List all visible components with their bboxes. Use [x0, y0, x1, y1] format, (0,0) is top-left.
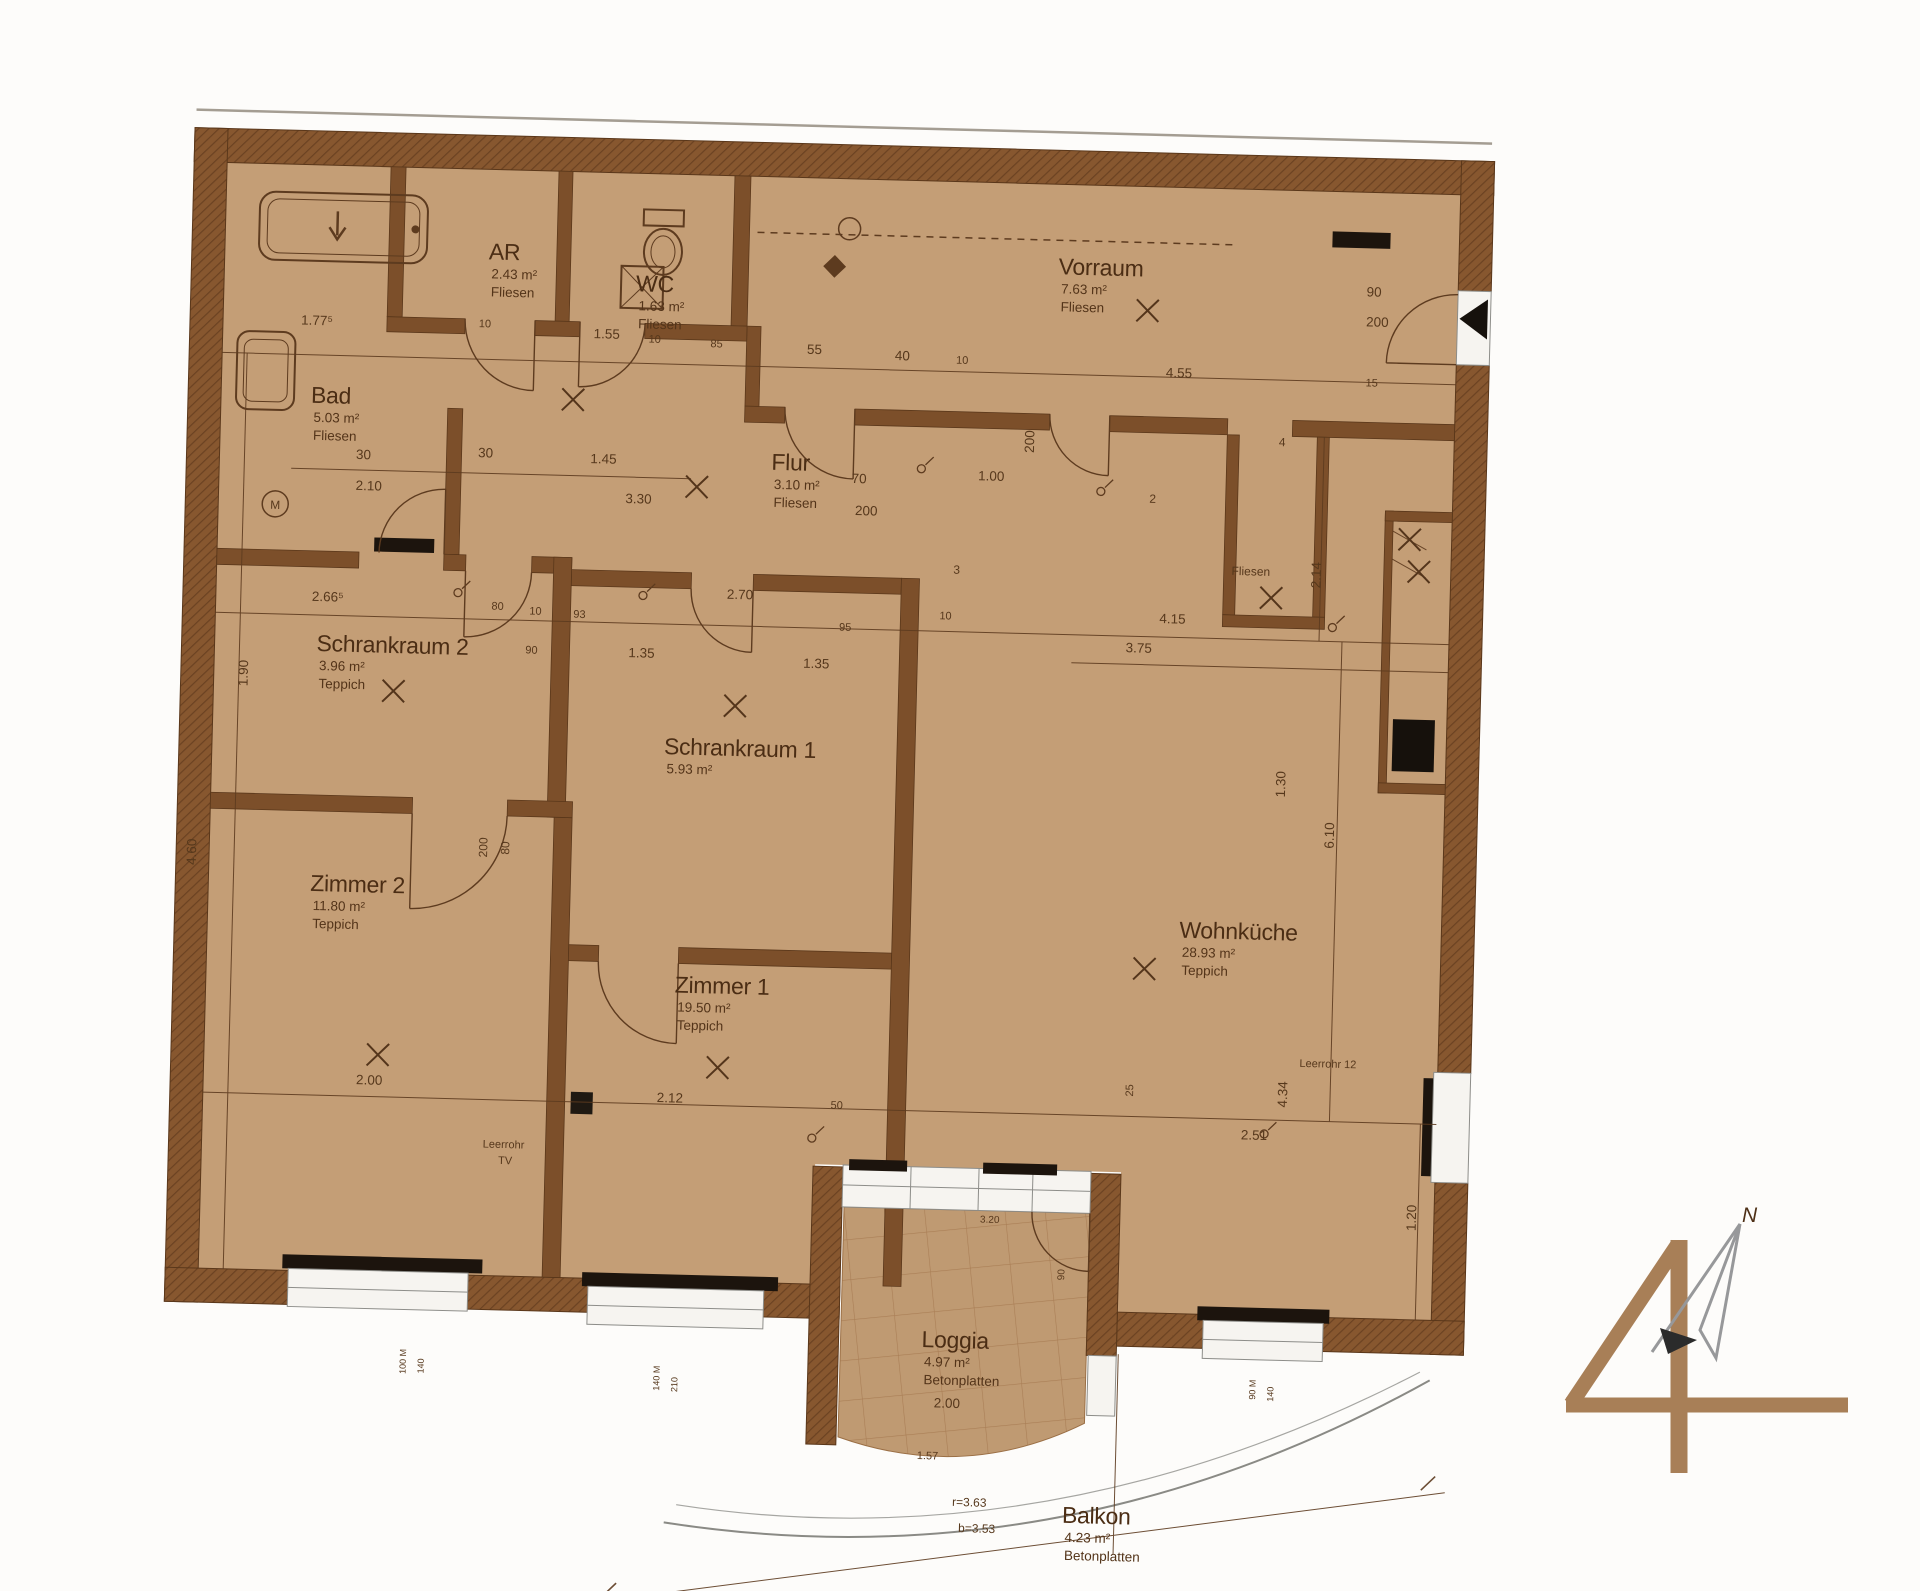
dimension-label: 200	[1022, 430, 1038, 453]
room-flooring: Fliesen	[1060, 299, 1104, 315]
dimension-label: 1.45	[590, 451, 617, 467]
floor-plan-page: Bad5.03 m²FliesenAR2.43 m²FliesenWC1.63 …	[0, 0, 1920, 1591]
dimension-label: 6.10	[1322, 822, 1338, 849]
dimension-label: 2.70	[727, 587, 754, 603]
dimension-label: 50	[830, 1100, 843, 1112]
wall-flur-bottom-a	[444, 554, 466, 571]
dimension-label: 85	[710, 338, 723, 350]
dimension-label: 2.12	[656, 1090, 683, 1106]
dimension-label: 140	[416, 1358, 426, 1373]
wall-ar-bottom-b	[535, 321, 580, 337]
room-flooring: Teppich	[677, 1018, 724, 1034]
dimension-label: 3.30	[625, 491, 652, 507]
dimension-label: 1.55	[593, 326, 620, 342]
dimension-label: 10	[939, 610, 952, 622]
dimension-label: 200	[1366, 314, 1389, 330]
dimension-label: 1.90	[235, 660, 251, 687]
dimension-label: 90	[525, 644, 538, 656]
wall-shaft-kitchen-top	[1385, 511, 1452, 523]
room-name: Zimmer 2	[310, 870, 405, 898]
wall-bad-bottom	[217, 548, 359, 568]
loggia-wall-right	[1086, 1173, 1121, 1356]
bathtub-tap	[412, 226, 418, 232]
dimension-label: 200	[855, 503, 878, 519]
dimension-label: 80	[498, 841, 512, 855]
dimension-label: 10	[529, 606, 542, 618]
dimension-label: 1.77⁵	[301, 312, 333, 328]
wall-right-upper	[1458, 161, 1494, 292]
dimension-label: 4	[1279, 435, 1286, 449]
dimension-label: r=3.63	[952, 1495, 987, 1510]
room-area: 28.93 m²	[1182, 945, 1236, 961]
dimension-label: 80	[491, 601, 504, 613]
dimension-label: 100 M	[398, 1349, 409, 1374]
north-arrow: N	[1652, 1204, 1758, 1358]
room-area: 1.63 m²	[638, 298, 685, 314]
wall-schrank2-zimmer2-b	[507, 800, 572, 818]
dimension-label: 10	[479, 318, 492, 330]
dimension-label: 1.00	[978, 468, 1005, 484]
bad-door-threshold	[374, 537, 434, 553]
dimension-label: 140 M	[651, 1365, 662, 1390]
logo-4-diagonal-stroke	[1571, 1244, 1678, 1404]
north-label: N	[1742, 1204, 1758, 1227]
dimension-label: b=3.53	[958, 1521, 996, 1536]
dimension-label: Leerrohr 12	[1299, 1058, 1356, 1071]
wall-wc-vorraum	[731, 176, 751, 326]
wall-schrank1-top-b	[753, 574, 901, 594]
room-name: Vorraum	[1058, 253, 1143, 281]
dimension-label: 3	[953, 563, 960, 577]
room-area: 3.10 m²	[774, 477, 821, 493]
room-name: Wohnküche	[1179, 917, 1298, 946]
room-area: 19.50 m²	[677, 1000, 731, 1016]
dimension-label: 93	[573, 609, 586, 621]
dimension-label: 10	[648, 334, 661, 346]
dimension-label: 1.20	[1404, 1204, 1420, 1231]
balkon-dim-line	[578, 1470, 1445, 1591]
room-flooring: Fliesen	[313, 428, 357, 444]
balkon-dim-ticks	[602, 1455, 1435, 1591]
loggia-sill-1	[849, 1159, 907, 1172]
room-name: Zimmer 1	[674, 971, 769, 999]
dimension-label: Leerrohr	[483, 1138, 525, 1151]
dimension-label: 1.35	[628, 645, 655, 661]
dimension-label: 4.34	[1275, 1081, 1291, 1108]
dimension-label: 95	[839, 622, 852, 634]
dimension-label: 2.51	[1241, 1127, 1268, 1143]
wall-schrank1-zimmer1-a	[568, 945, 598, 962]
room-area: 4.23 m²	[1064, 1530, 1111, 1546]
wall-niche-bottom	[1222, 615, 1324, 630]
room-name: Bad	[311, 382, 352, 409]
dimension-label: 2.00	[934, 1395, 961, 1411]
dimension-label: 1.57	[917, 1450, 939, 1463]
room-name: Loggia	[921, 1326, 989, 1354]
loggia-sill-2	[983, 1163, 1057, 1176]
room-name: WC	[636, 270, 674, 297]
room-flooring: Fliesen	[491, 284, 535, 300]
dimension-label: 200	[476, 837, 491, 858]
dimension-label: 3.20	[980, 1215, 1000, 1227]
room-flooring: Fliesen	[773, 495, 817, 511]
wall-vorraum-bottom-a	[745, 406, 785, 423]
wall-vorraum-bottom-c	[1109, 416, 1227, 435]
dimension-label: 90	[1056, 1269, 1067, 1281]
dimension-label: 55	[807, 342, 822, 357]
room-name: Schrankraum 1	[664, 733, 817, 763]
dimension-label: 90 M	[1247, 1380, 1258, 1400]
dimension-label: 15	[1365, 377, 1378, 389]
room-flooring: Betonplatten	[1064, 1548, 1140, 1565]
dimension-label: 4.15	[1159, 611, 1186, 627]
dimension-label: 70	[851, 471, 866, 486]
room-flooring: Fliesen	[638, 316, 682, 332]
logo-4: 4	[1566, 1240, 1848, 1473]
dimension-label: Fliesen	[1231, 564, 1270, 579]
shaft-block	[1392, 719, 1435, 772]
dimension-label: M	[270, 498, 280, 512]
room-name: Flur	[771, 449, 811, 476]
wall-schrank1-top-a	[571, 570, 691, 589]
dimension-label: 4.55	[1166, 365, 1193, 381]
dimension-label: 210	[669, 1377, 679, 1392]
dimension-label: 90	[1366, 284, 1381, 299]
room-area: 3.96 m²	[319, 658, 366, 674]
dimension-label: 4.60	[184, 838, 200, 865]
room-area: 5.03 m²	[313, 410, 360, 426]
room-name: Balkon	[1062, 1502, 1131, 1530]
room-flooring: Teppich	[1181, 963, 1228, 979]
dimension-label: 1.35	[803, 656, 830, 672]
loggia-side-window	[1087, 1355, 1117, 1416]
dimension-label: 40	[895, 348, 910, 363]
dimension-label: 2.00	[356, 1072, 383, 1088]
room-area: 7.63 m²	[1061, 281, 1108, 297]
room-area: 5.93 m²	[666, 761, 713, 777]
dimension-label: TV	[498, 1155, 513, 1167]
dimension-label: 25	[1124, 1084, 1136, 1097]
dimension-label: 140	[1265, 1387, 1275, 1402]
entrance-mat	[1332, 231, 1390, 249]
dimension-label: 2	[1149, 492, 1156, 506]
wall-shaft-kitchen-bottom	[1378, 783, 1445, 795]
room-flooring: Teppich	[318, 676, 365, 692]
room-area: 11.80 m²	[313, 898, 366, 914]
dimension-label: 10	[956, 355, 969, 367]
floor-plan-drawing: Bad5.03 m²FliesenAR2.43 m²FliesenWC1.63 …	[0, 0, 1920, 1591]
room-flooring: Teppich	[312, 916, 359, 932]
dimension-label: 3.75	[1125, 640, 1152, 656]
wall-ar-bottom-a	[387, 317, 465, 334]
room-flooring: Betonplatten	[923, 1372, 999, 1389]
room-area: 4.97 m²	[924, 1354, 971, 1370]
dimension-label: 30	[356, 447, 371, 462]
dimension-label: 2.14	[1308, 561, 1324, 588]
room-name: AR	[489, 238, 521, 265]
room-name: Schrankraum 2	[316, 630, 469, 660]
plan-root: Bad5.03 m²FliesenAR2.43 m²FliesenWC1.63 …	[157, 110, 1495, 1591]
window-4	[1431, 1072, 1471, 1183]
dimension-label: 30	[478, 445, 493, 460]
room-area: 2.43 m²	[491, 266, 538, 282]
dimension-label: 2.10	[355, 478, 382, 494]
tv-box	[570, 1092, 593, 1115]
north-needle-tail	[1700, 1224, 1740, 1358]
dimension-label: 2.66⁵	[312, 589, 344, 605]
apartment-floor	[198, 160, 1461, 1320]
dimension-label: 1.30	[1273, 771, 1289, 798]
